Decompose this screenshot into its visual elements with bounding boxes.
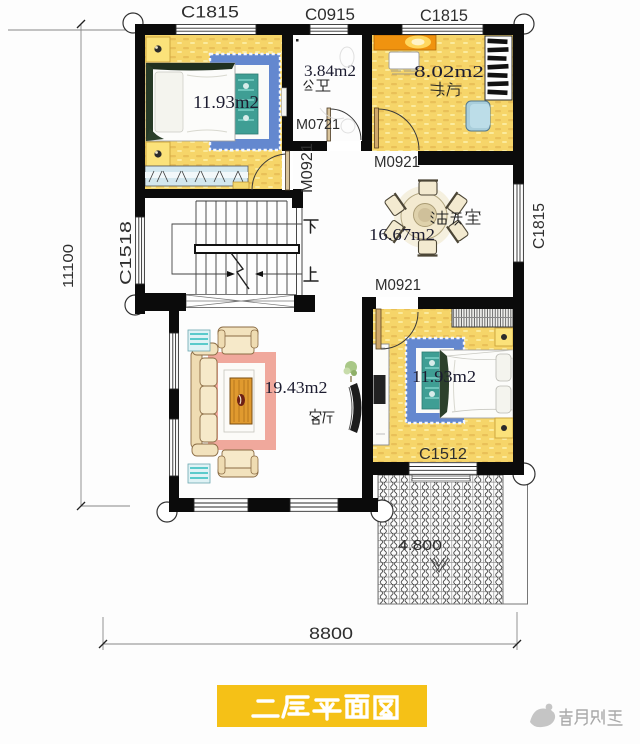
svg-text:8.02m2: 8.02m2 <box>414 62 484 81</box>
svg-text:C0915: C0915 <box>305 5 355 24</box>
svg-text:8800: 8800 <box>309 624 353 643</box>
svg-text:M0921: M0921 <box>299 143 316 193</box>
svg-text:11.93m2: 11.93m2 <box>412 367 476 386</box>
svg-text:M0921: M0921 <box>375 277 421 294</box>
svg-text:C1815: C1815 <box>181 3 239 22</box>
svg-text:M0921: M0921 <box>374 154 420 171</box>
svg-text:3.84m2: 3.84m2 <box>304 63 356 80</box>
svg-text:C1815: C1815 <box>420 6 468 25</box>
svg-text:11.93m2: 11.93m2 <box>193 92 259 112</box>
svg-text:19.43m2: 19.43m2 <box>265 378 328 397</box>
svg-text:C1518: C1518 <box>118 221 135 285</box>
svg-text:16.67m2: 16.67m2 <box>369 225 435 244</box>
svg-text:C1512: C1512 <box>419 446 467 463</box>
svg-text:C1815: C1815 <box>531 203 548 249</box>
svg-text:11100: 11100 <box>61 244 77 288</box>
svg-text:4.800: 4.800 <box>398 537 442 554</box>
